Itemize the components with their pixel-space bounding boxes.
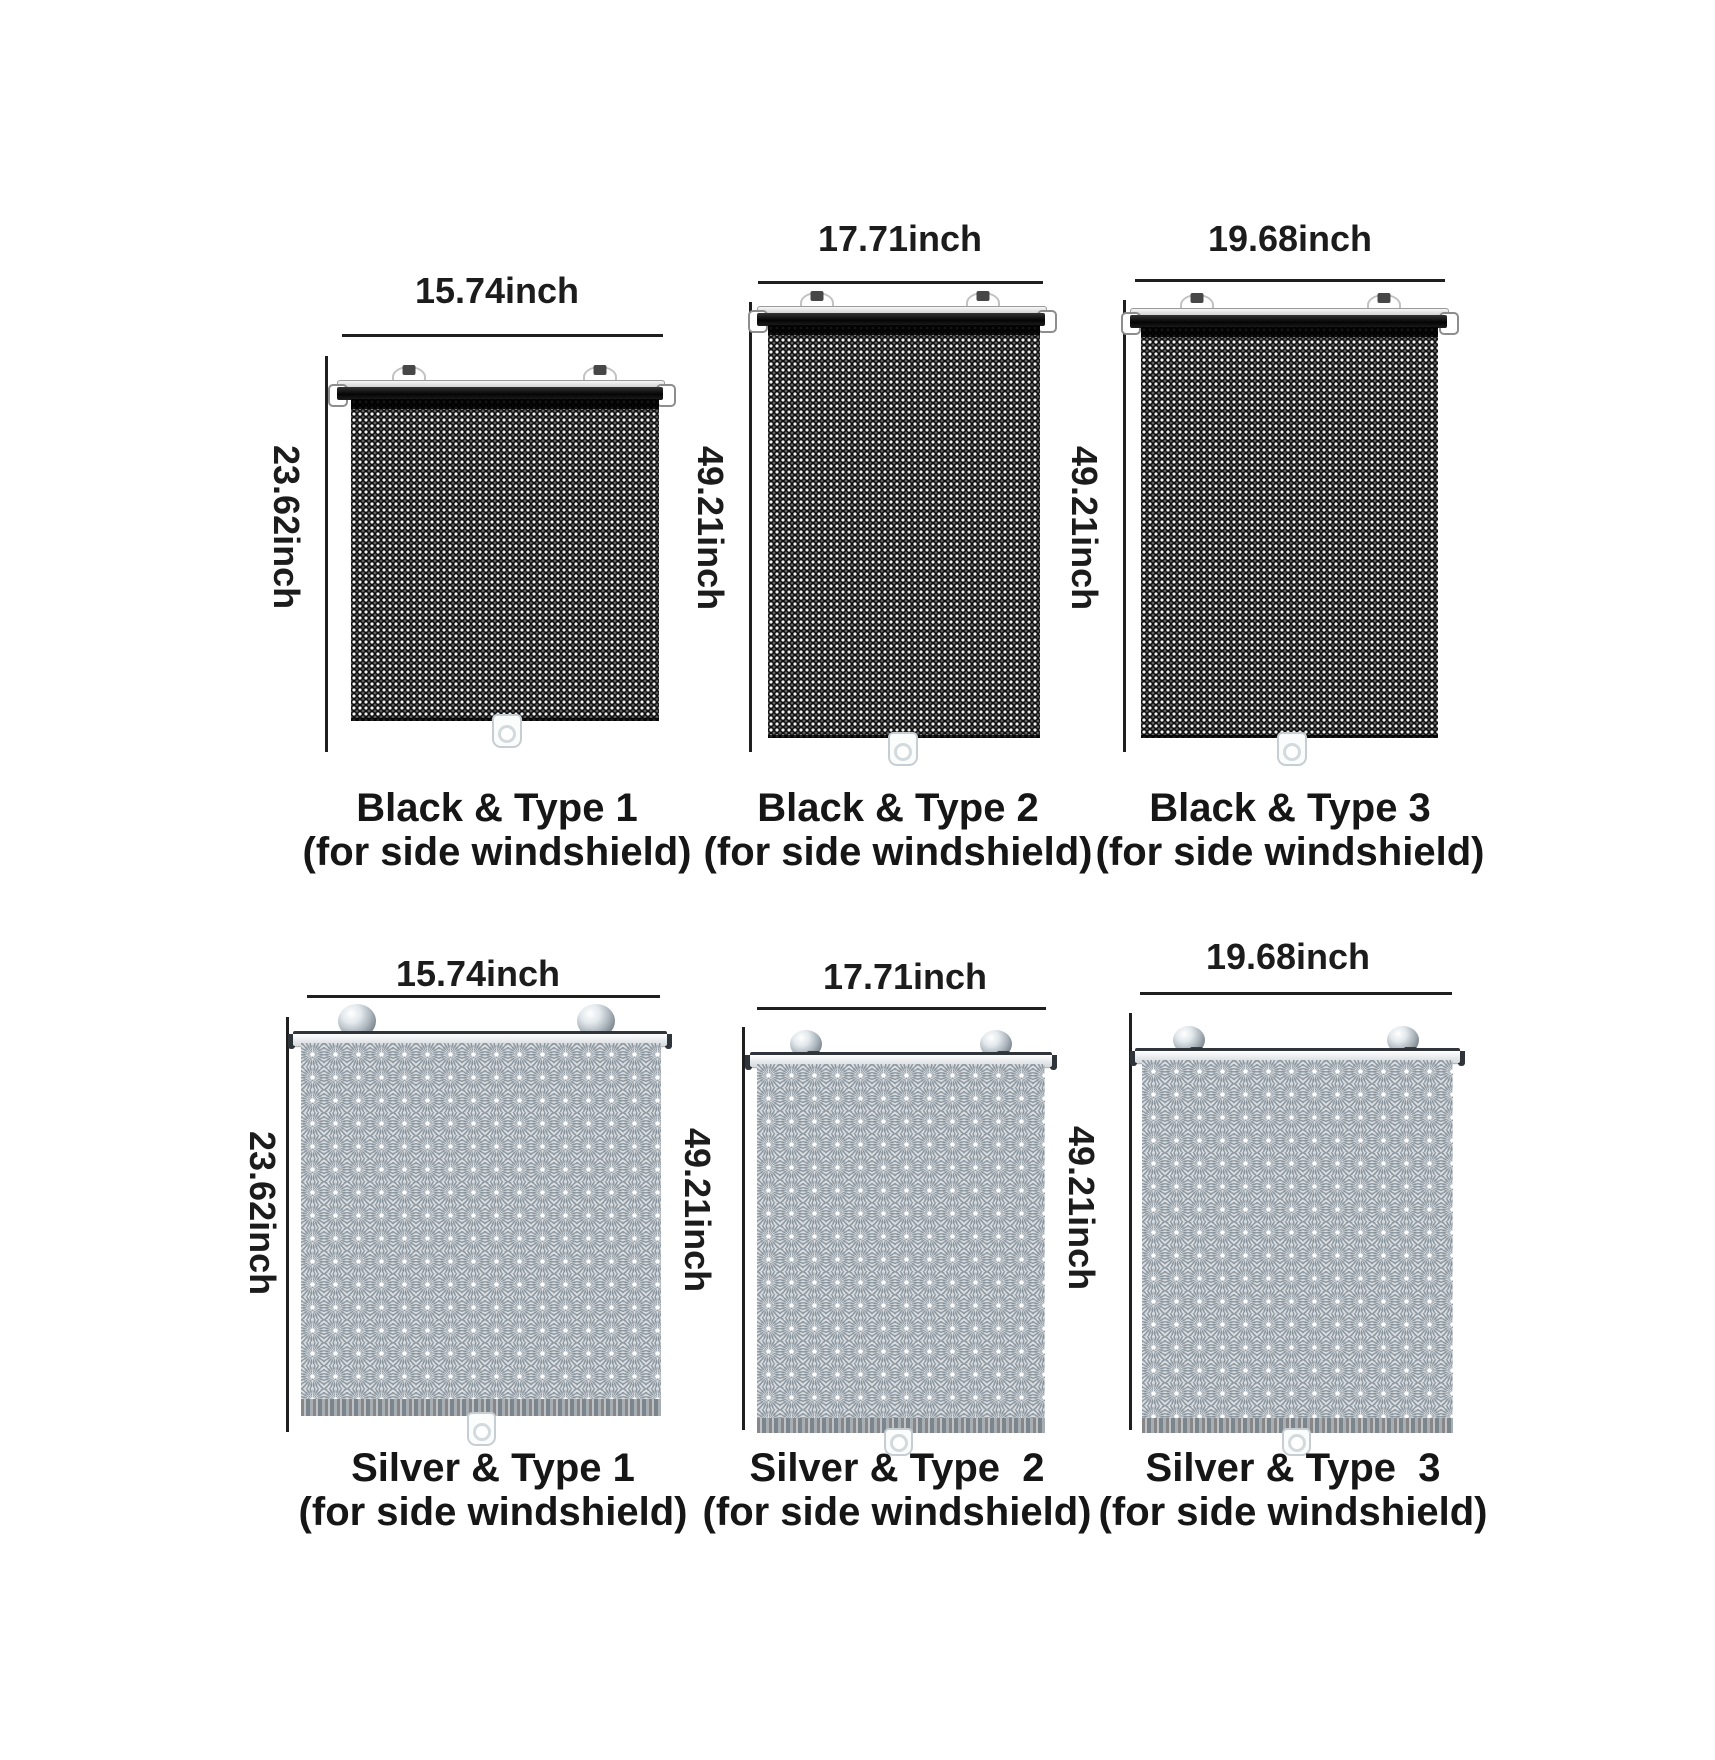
pull-tab <box>1277 732 1307 766</box>
pull-tab <box>492 714 522 748</box>
sunshade-mesh-black-type1 <box>351 399 659 721</box>
width-dimension-label: 15.74inch <box>415 270 579 312</box>
suction-cup-clip-icon <box>977 291 990 301</box>
height-dimension-label: 49.21inch <box>1059 1058 1103 1358</box>
product-variant-title: Black & Type 3 <box>1149 786 1431 830</box>
width-dimension-label: 17.71inch <box>818 218 982 260</box>
pull-tab-hole-icon <box>498 725 516 743</box>
width-dimension-label: 17.71inch <box>823 956 987 998</box>
product-size-infographic: 15.74inch 23.62inch Black & Type 1 (for … <box>0 0 1715 1760</box>
sunshade-mesh-silver-type1 <box>301 1043 661 1399</box>
product-variant-subtitle: (for side windshield) <box>703 1490 1092 1534</box>
product-variant-subtitle: (for side windshield) <box>1096 830 1485 874</box>
product-variant-title: Black & Type 2 <box>757 786 1039 830</box>
sunshade-mesh-silver-type3 <box>1142 1060 1453 1418</box>
sunshade-mesh-silver-type2 <box>757 1064 1045 1418</box>
height-dimension-label: 49.21inch <box>1062 378 1106 678</box>
product-variant-title: Silver & Type 1 <box>351 1446 635 1490</box>
roller-shadow <box>1141 327 1438 337</box>
product-variant-subtitle: (for side windshield) <box>299 1490 688 1534</box>
height-dimension-label: 23.62inch <box>264 377 308 677</box>
sunshade-mesh-black-type3 <box>1141 327 1438 738</box>
product-variant-title: Silver & Type 2 <box>750 1446 1045 1490</box>
height-dimension-line <box>1123 300 1126 752</box>
suction-cup-clip-icon <box>403 365 416 375</box>
height-dimension-line <box>286 1017 289 1432</box>
height-dimension-line <box>325 356 328 752</box>
suction-cup-clip-icon <box>1378 293 1391 303</box>
height-dimension-label: 49.21inch <box>688 378 732 678</box>
height-dimension-line <box>749 302 752 752</box>
height-dimension-label: 23.62inch <box>240 1063 284 1363</box>
suction-cup-clip-icon <box>1191 293 1204 303</box>
roller-shadow <box>768 325 1040 335</box>
product-variant-title: Black & Type 1 <box>356 786 638 830</box>
product-variant-subtitle: (for side windshield) <box>303 830 692 874</box>
suction-cup-clip-icon <box>594 365 607 375</box>
pull-tab-hole-icon <box>894 743 912 761</box>
width-dimension-line <box>757 1007 1046 1010</box>
height-dimension-line <box>742 1027 745 1430</box>
width-dimension-line <box>307 995 660 998</box>
suction-cup-clip-icon <box>811 291 824 301</box>
pull-tab <box>467 1412 496 1446</box>
width-dimension-label: 19.68inch <box>1208 218 1372 260</box>
width-dimension-line <box>342 334 663 337</box>
product-variant-title: Silver & Type 3 <box>1146 1446 1441 1490</box>
product-variant-subtitle: (for side windshield) <box>1099 1490 1488 1534</box>
width-dimension-label: 19.68inch <box>1206 936 1370 978</box>
pull-tab-hole-icon <box>1283 743 1301 761</box>
width-dimension-label: 15.74inch <box>396 953 560 995</box>
height-dimension-label: 49.21inch <box>675 1060 719 1360</box>
pull-tab-hole-icon <box>473 1423 491 1441</box>
pull-tab <box>888 732 918 766</box>
height-dimension-line <box>1129 1013 1132 1430</box>
width-dimension-line <box>1140 992 1452 995</box>
roller-shadow <box>351 399 659 409</box>
width-dimension-line <box>1135 279 1445 282</box>
product-variant-subtitle: (for side windshield) <box>704 830 1093 874</box>
width-dimension-line <box>758 281 1043 284</box>
sunshade-mesh-black-type2 <box>768 325 1040 738</box>
